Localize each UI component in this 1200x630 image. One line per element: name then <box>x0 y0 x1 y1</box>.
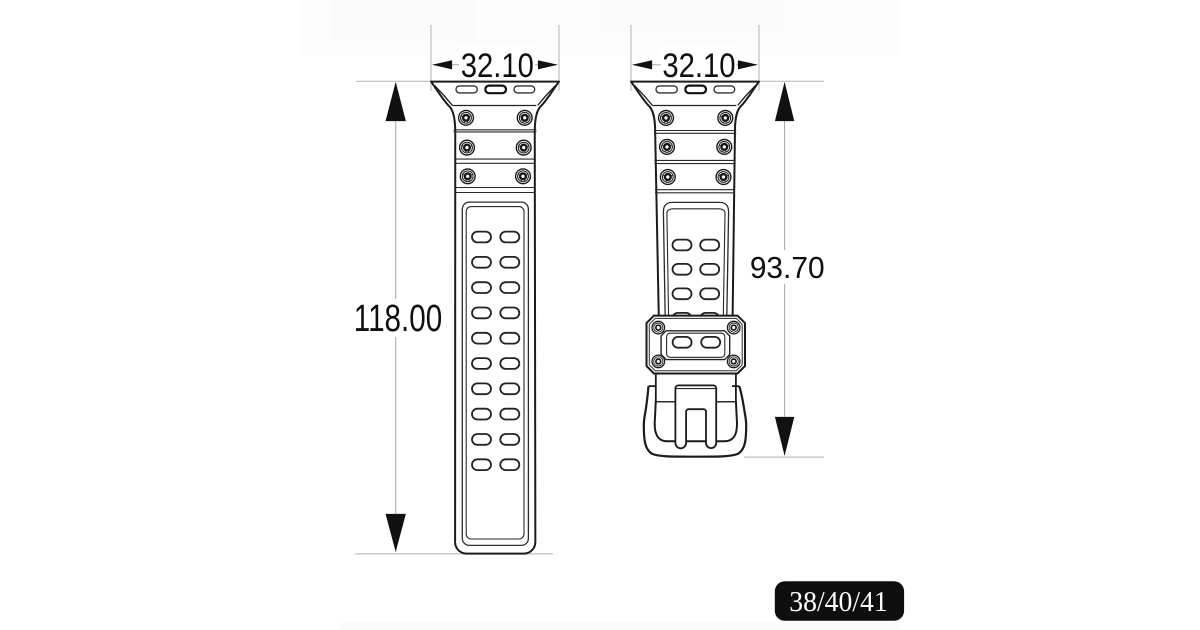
svg-text:32.10: 32.10 <box>662 46 735 85</box>
svg-text:118.00: 118.00 <box>354 298 442 340</box>
svg-text:93.70: 93.70 <box>750 252 825 285</box>
svg-text:38/40/41: 38/40/41 <box>789 586 887 618</box>
svg-text:32.10: 32.10 <box>461 46 534 85</box>
